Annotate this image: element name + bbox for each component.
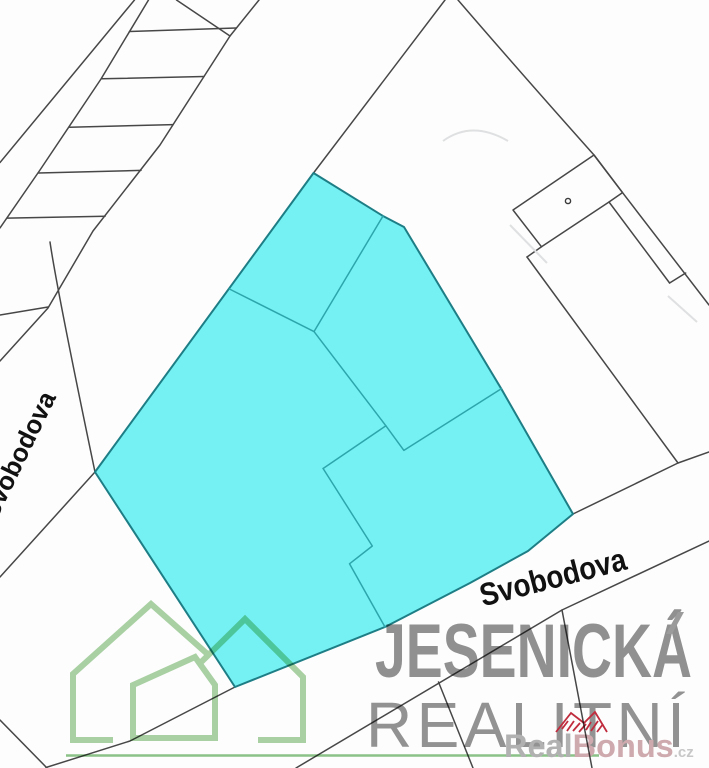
svg-text:JESENICKÁ: JESENICKÁ [375,609,692,694]
svg-text:RealBonus.cz: RealBonus.cz [504,728,694,764]
